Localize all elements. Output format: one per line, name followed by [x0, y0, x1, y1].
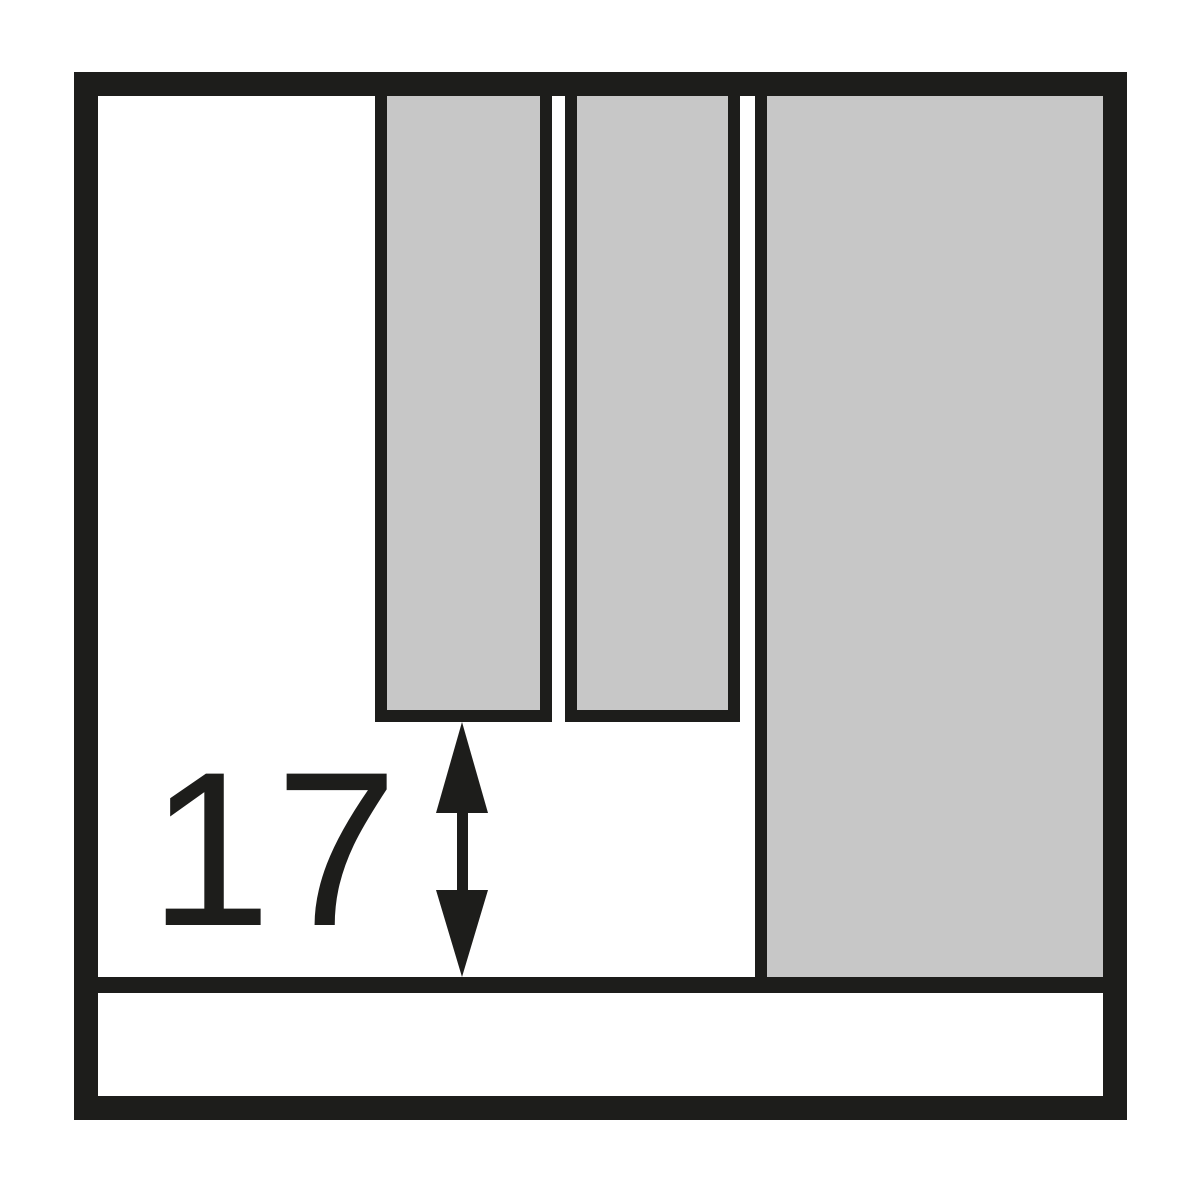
divider-panel-middle: [565, 96, 740, 722]
drawer-base-line: [98, 977, 1103, 993]
dimension-arrow-down-head-icon: [436, 890, 488, 977]
divider-panel-left: [375, 96, 552, 722]
partition-wall-line: [755, 96, 767, 993]
side-panel-right: [767, 96, 1103, 978]
dimension-arrow-up-head-icon: [436, 722, 488, 813]
diagram-canvas: 17: [0, 0, 1200, 1200]
dimension-label: 17: [149, 739, 402, 959]
dimension-arrow-shaft-icon: [457, 810, 468, 894]
